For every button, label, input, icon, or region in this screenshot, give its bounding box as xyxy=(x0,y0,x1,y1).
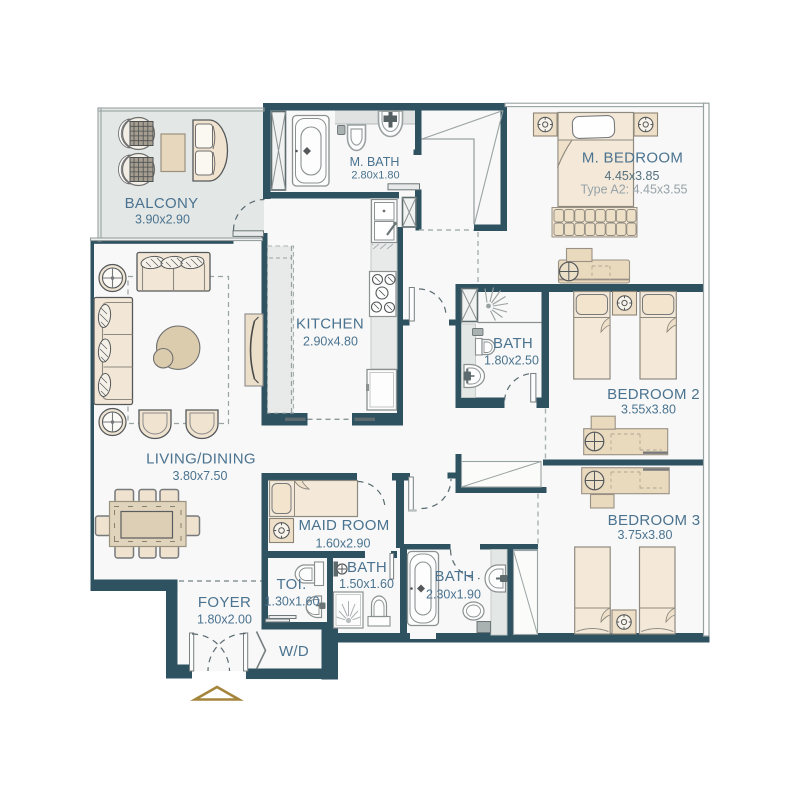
svg-text:KITCHEN: KITCHEN xyxy=(296,316,364,333)
svg-text:2.30x1.90: 2.30x1.90 xyxy=(426,588,481,602)
svg-text:FOYER: FOYER xyxy=(198,594,251,611)
svg-text:BEDROOM 3: BEDROOM 3 xyxy=(608,512,701,529)
svg-text:LIVING/DINING: LIVING/DINING xyxy=(146,451,256,468)
svg-text:W/D: W/D xyxy=(279,643,309,660)
svg-text:M. BATH: M. BATH xyxy=(350,155,400,169)
svg-text:MAID ROOM: MAID ROOM xyxy=(298,517,389,534)
svg-text:3.55x3.80: 3.55x3.80 xyxy=(621,403,676,417)
svg-text:Type A2: 4.45x3.55: Type A2: 4.45x3.55 xyxy=(580,183,687,197)
svg-text:BEDROOM 2: BEDROOM 2 xyxy=(607,386,700,403)
svg-text:2.90x4.80: 2.90x4.80 xyxy=(303,335,358,349)
svg-text:TOI.: TOI. xyxy=(276,576,306,593)
svg-text:4.45x3.85: 4.45x3.85 xyxy=(605,169,660,183)
svg-text:1.50x1.60: 1.50x1.60 xyxy=(339,577,394,591)
svg-text:M. BEDROOM: M. BEDROOM xyxy=(582,150,683,167)
svg-text:1.30x1.60: 1.30x1.60 xyxy=(265,595,320,609)
svg-text:3.75x3.80: 3.75x3.80 xyxy=(618,528,673,542)
svg-text:3.80x7.50: 3.80x7.50 xyxy=(173,469,228,483)
svg-text:BALCONY: BALCONY xyxy=(125,195,199,212)
svg-text:BATH: BATH xyxy=(493,335,533,352)
svg-text:2.80x1.80: 2.80x1.80 xyxy=(351,170,399,182)
svg-text:1.60x2.90: 1.60x2.90 xyxy=(316,537,371,551)
svg-text:1.80x2.50: 1.80x2.50 xyxy=(484,354,539,368)
svg-text:3.90x2.90: 3.90x2.90 xyxy=(135,213,190,227)
svg-text:BATH: BATH xyxy=(434,568,474,585)
svg-text:BATH: BATH xyxy=(347,559,387,576)
svg-text:1.80x2.00: 1.80x2.00 xyxy=(197,613,252,627)
